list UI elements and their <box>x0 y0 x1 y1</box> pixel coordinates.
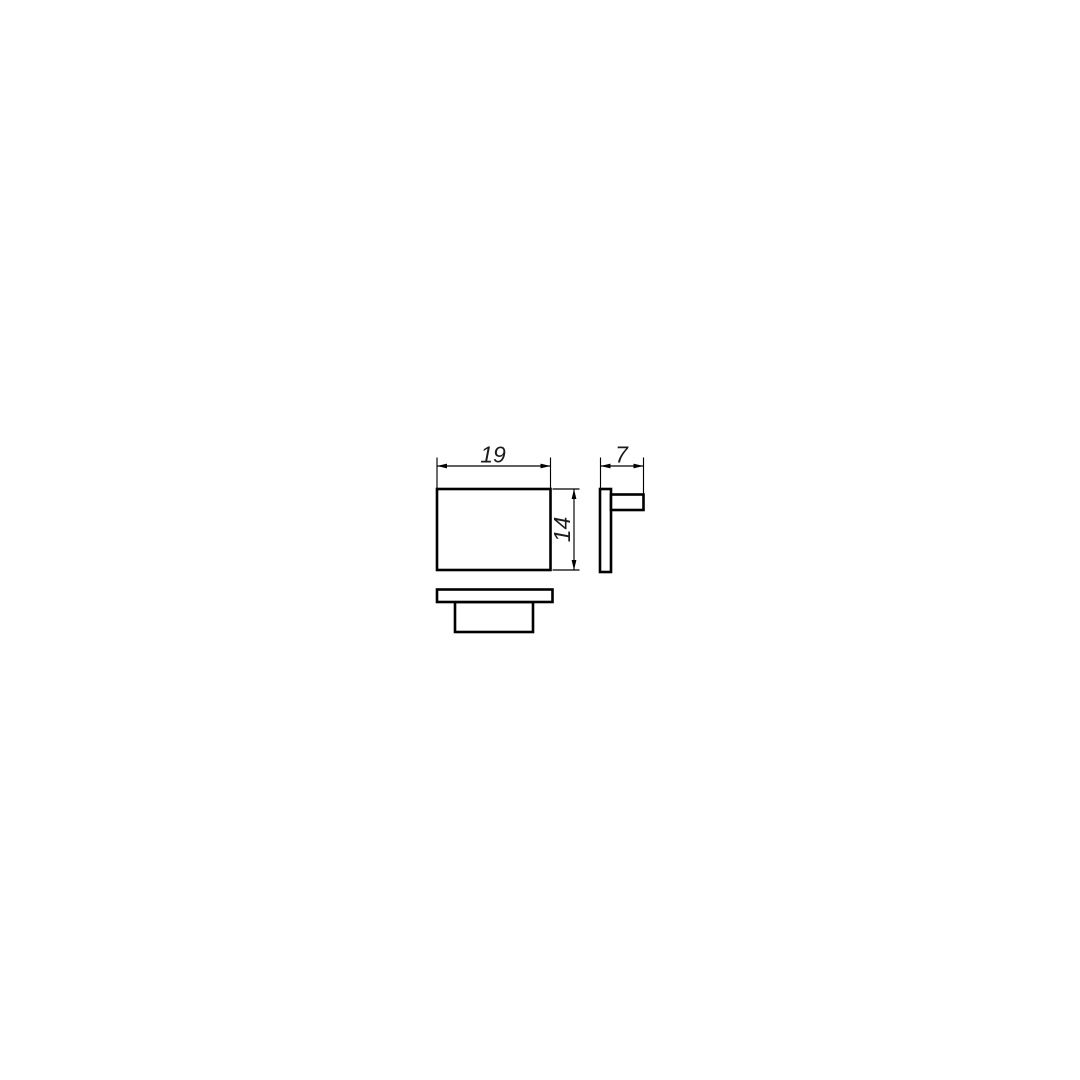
technical-drawing-canvas: 19 7 14 <box>0 0 1080 1080</box>
side-view <box>600 489 644 572</box>
arrow-down-icon <box>572 560 577 570</box>
arrow-left-icon <box>601 464 611 469</box>
side-view-boss-outline <box>611 495 644 511</box>
arrow-right-icon <box>634 464 644 469</box>
arrow-right-icon <box>541 464 551 469</box>
top-view-boss-outline <box>455 602 533 632</box>
dimension-width: 19 <box>437 442 551 489</box>
dimension-label-width: 19 <box>480 442 506 468</box>
dimension-height: 14 <box>549 489 580 570</box>
front-view <box>437 489 551 570</box>
front-view-outline <box>437 489 551 570</box>
arrow-up-icon <box>572 489 577 499</box>
dimension-depth: 7 <box>601 442 644 494</box>
dimension-label-height: 14 <box>549 517 575 543</box>
top-view-plate-outline <box>437 590 553 603</box>
side-view-plate-outline <box>600 489 611 572</box>
top-view <box>437 590 553 633</box>
drawing-sheet: 19 7 14 <box>0 0 1080 1080</box>
dimension-label-depth: 7 <box>615 442 629 468</box>
arrow-left-icon <box>437 464 447 469</box>
